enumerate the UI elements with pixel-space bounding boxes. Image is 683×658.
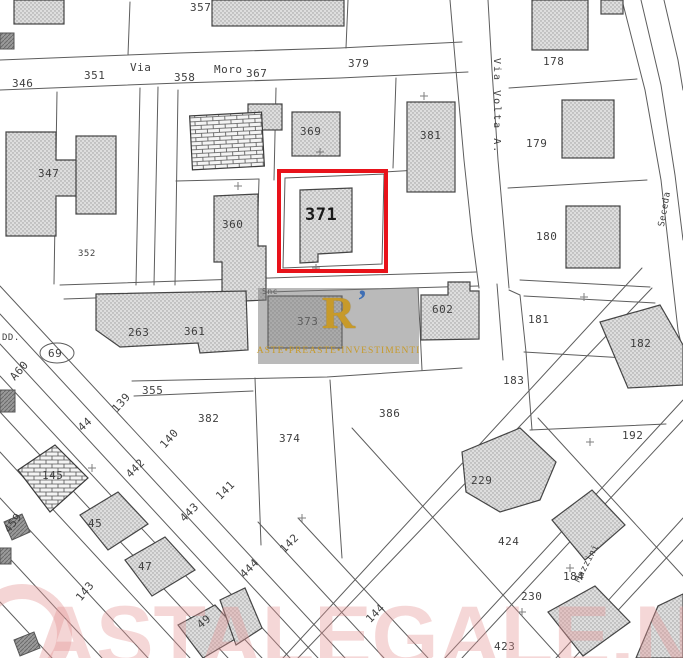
highlight-red-box [277, 169, 388, 273]
aste-watermark-text: ASTE•PREASTE•INVESTIMENTI [257, 346, 421, 356]
map-label-mazzini: Mazzini [574, 543, 601, 584]
map-label-386: 386 [379, 408, 400, 419]
map-label-via: Via [130, 62, 151, 73]
aste-logo-letter: R [322, 287, 355, 338]
map-label-182: 182 [630, 338, 651, 349]
map-label-192: 192 [622, 430, 643, 441]
map-label-183: 183 [503, 375, 524, 386]
map-label-361: 361 [184, 326, 205, 337]
map-label-a60: A60 [8, 359, 30, 382]
map-label-423: 423 [494, 641, 515, 652]
map-label-355: 355 [142, 385, 163, 396]
map-label-229: 229 [471, 475, 492, 486]
map-label-142: 142 [278, 532, 301, 555]
map-label-346: 346 [12, 78, 33, 89]
map-label-602: 602 [432, 304, 453, 315]
map-label-369: 369 [300, 126, 321, 137]
map-label-347: 347 [38, 168, 59, 179]
map-label-444: 444 [238, 557, 261, 580]
map-label-44: 44 [76, 415, 94, 433]
aste-logo: R ’ [322, 290, 355, 342]
map-label-144: 144 [364, 602, 387, 625]
map-label-dd-: DD. [2, 334, 20, 343]
map-label-381: 381 [420, 130, 441, 141]
map-label-358: 358 [174, 72, 195, 83]
map-label-45: 45 [88, 518, 102, 529]
map-label-49: 49 [195, 613, 213, 631]
map-label-179: 179 [526, 138, 547, 149]
watermark-aste: R ’ ASTE•PREASTE•INVESTIMENTI [258, 288, 419, 364]
map-label-382: 382 [198, 413, 219, 424]
map-label-443: 443 [178, 501, 201, 524]
map-label-351: 351 [84, 70, 105, 81]
map-label-143: 143 [74, 580, 96, 603]
map-label-367: 367 [246, 68, 267, 79]
map-label-360: 360 [222, 219, 243, 230]
map-label-230: 230 [521, 591, 542, 602]
map-label-178: 178 [543, 56, 564, 67]
cadastral-map-canvas: 357346351Via358Moro367379369381178179Via… [0, 0, 683, 658]
map-label-139: 139 [110, 391, 132, 414]
map-label-424: 424 [498, 536, 519, 547]
map-label-seceda: Seceda [658, 191, 673, 228]
map-label-69: 69 [48, 348, 62, 359]
map-label-374: 374 [279, 433, 300, 444]
map-label-moro: Moro [214, 64, 243, 75]
map-label-141: 141 [214, 479, 237, 502]
map-label-379: 379 [348, 58, 369, 69]
map-label-263: 263 [128, 327, 149, 338]
map-label-via-volta-a-: Via Volta A. [491, 58, 501, 154]
map-label-181: 181 [528, 314, 549, 325]
map-label-47: 47 [138, 561, 152, 572]
map-label-459: 459 [2, 511, 24, 535]
map-label-180: 180 [536, 231, 557, 242]
map-label-442: 442 [124, 457, 147, 480]
map-label-352: 352 [78, 250, 96, 259]
map-label-357: 357 [190, 2, 211, 13]
map-label-140: 140 [158, 427, 180, 450]
map-label-145: 145 [42, 470, 63, 481]
aste-logo-accent-icon: ’ [357, 286, 367, 316]
